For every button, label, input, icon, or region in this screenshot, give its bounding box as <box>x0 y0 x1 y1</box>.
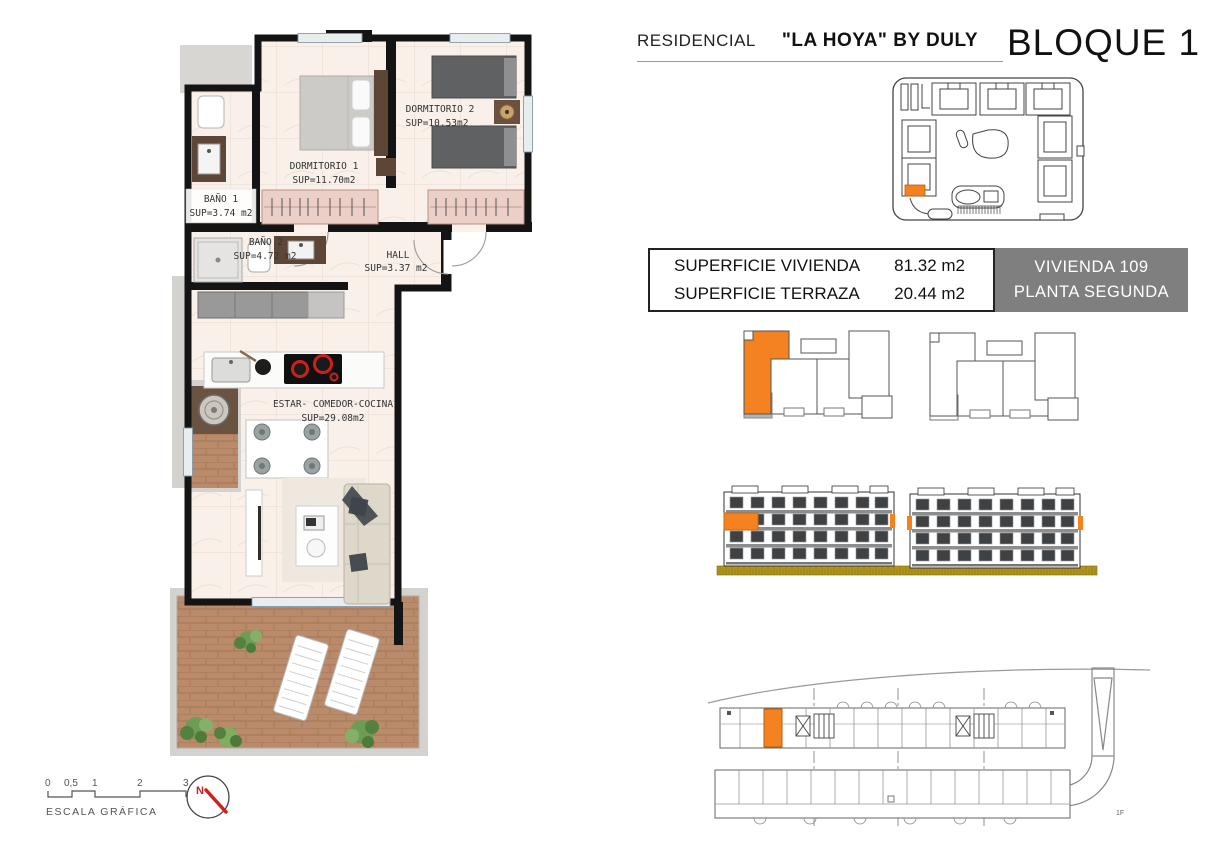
surface-label: SUPERFICIE VIVIENDA <box>674 253 860 279</box>
scale-bar-label: ESCALA GRÁFICA <box>46 805 157 818</box>
north-arrow: N <box>187 776 229 818</box>
residencial-label: RESIDENCIAL <box>637 31 756 51</box>
scale-tick: 1 <box>92 778 98 789</box>
unit-floor: PLANTA SEGUNDA <box>1014 280 1169 305</box>
elevation-highlighted-unit <box>724 513 758 530</box>
road-edge <box>708 669 1150 703</box>
storage-band <box>720 702 1065 748</box>
plan-sheet: DORMITORIO 1 SUP=11.70m2 DORMITORIO 2 SU… <box>0 0 1223 865</box>
room-label-dormitorio1: DORMITORIO 1 <box>290 161 359 172</box>
elevation-left <box>724 486 895 566</box>
room-sup-bano2: SUP=4.72 m2 <box>234 251 297 262</box>
scale-tick: 0 <box>45 778 51 789</box>
scale-tick: 0,5 <box>64 778 78 789</box>
wardrobe-dorm1 <box>262 190 378 224</box>
scale-bar: 0 0,5 1 2 3 ESCALA GRÁFICA <box>45 778 189 818</box>
room-label-bano1: BAÑO 1 <box>204 194 239 205</box>
surface-table: SUPERFICIE VIVIENDA 81.32 m2 SUPERFICIE … <box>648 248 995 312</box>
unit-badge: VIVIENDA 109 PLANTA SEGUNDA <box>995 248 1188 312</box>
surface-value: 20.44 m2 <box>894 281 969 307</box>
elevations <box>712 476 1102 588</box>
surface-label: SUPERFICIE TERRAZA <box>674 281 860 307</box>
legend: 0 0,5 1 2 3 ESCALA GRÁFICA N <box>0 760 260 844</box>
kitchen-counter <box>204 351 384 388</box>
site-highlighted-unit <box>905 185 925 196</box>
dining-table <box>246 420 328 478</box>
project-name: "LA HOYA" BY DULY <box>782 30 978 52</box>
room-sup-dormitorio1: SUP=11.70m2 <box>293 175 356 186</box>
unit-number: VIVIENDA 109 <box>1034 255 1148 280</box>
orange-accent <box>1078 516 1083 530</box>
hall-closet <box>198 292 344 318</box>
north-label: N <box>196 785 204 797</box>
highlighted-storage-unit <box>764 709 782 747</box>
ground-floor-plan: 1F <box>700 658 1170 838</box>
key-plan-highlighted <box>744 331 892 418</box>
summary-table: SUPERFICIE VIVIENDA 81.32 m2 SUPERFICIE … <box>648 248 1188 312</box>
elevation-right <box>907 488 1083 568</box>
room-label-bano2: BAÑO 2 <box>249 237 283 248</box>
room-label-hall: HALL <box>387 250 410 261</box>
apartment-floor-plan: DORMITORIO 1 SUP=11.70m2 DORMITORIO 2 SU… <box>0 0 560 865</box>
surface-value: 81.32 m2 <box>894 253 969 279</box>
room-sup-bano1: SUP=3.74 m2 <box>190 208 253 219</box>
room-sup-dormitorio2: SUP=10.53m2 <box>406 118 469 129</box>
room-label-estar: ESTAR- COMEDOR-COCINA <box>273 399 393 410</box>
title-block: RESIDENCIAL "LA HOYA" BY DULY <box>637 30 1003 62</box>
wardrobe-dorm2 <box>428 190 524 224</box>
ramp <box>1094 678 1112 750</box>
parking-band <box>715 770 1070 824</box>
orange-accent <box>890 514 895 528</box>
floor-tag: 1F <box>1116 810 1124 817</box>
scale-tick: 3 <box>183 778 189 789</box>
table-row: SUPERFICIE TERRAZA 20.44 m2 <box>674 281 969 307</box>
door-arcs <box>837 702 1041 708</box>
block-title: BLOQUE 1 <box>1007 22 1200 64</box>
room-sup-hall: SUP=3.37 m2 <box>365 263 428 274</box>
key-plan-plain <box>930 333 1078 420</box>
room-label-dormitorio2: DORMITORIO 2 <box>406 104 475 115</box>
water-heater <box>199 395 229 425</box>
key-plans <box>712 318 1102 430</box>
room-sup-estar: SUP=29.08m2 <box>302 413 365 424</box>
site-building-top <box>932 83 1070 115</box>
table-row: SUPERFICIE VIVIENDA 81.32 m2 <box>674 253 969 279</box>
orange-accent <box>907 516 912 530</box>
site-plan <box>870 68 1100 230</box>
scale-bar-line <box>48 791 186 797</box>
scale-tick: 2 <box>137 778 143 789</box>
